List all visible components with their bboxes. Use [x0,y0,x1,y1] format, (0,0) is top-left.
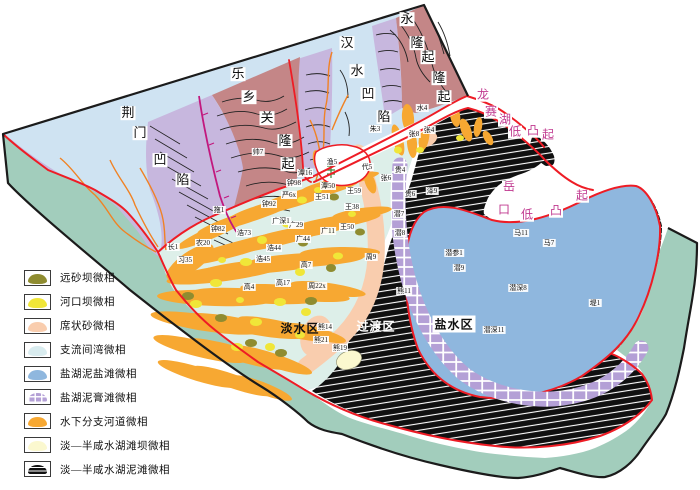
structure-label-lexiangguan-uplift: 关 [259,111,274,125]
legend-swatch-blob [28,346,47,356]
well-label: 潭16 [297,169,313,177]
legend-item-fresh-brackish-beach-bar: 淡—半咸水湖滩坝微相 [24,433,170,457]
legend-swatch-blob [28,370,47,380]
structure-label-lexiangguan-uplift: 乐 [230,67,245,81]
well-label: 高7 [300,261,313,269]
well-label: 堤1 [589,299,602,307]
structure-label-yonglong-uplift: 起 [436,90,451,104]
legend-label: 支流间湾微相 [60,342,126,357]
structure-label-jingmen-depression: 门 [132,126,147,140]
mouth-bar [190,300,202,308]
legend-item-distal-bar: 远砂坝微相 [24,266,170,290]
structure-label-hanshui-depression: 汉 [339,36,354,50]
legend-swatch-fresh-brackish-mud-flat [24,461,51,477]
well-label: 钟82 [210,225,226,233]
structure-label-yonglong-uplift: 永 [399,12,414,26]
legend-swatch-blob [28,274,47,284]
distal-bar [215,314,227,322]
legend-swatch-blob [28,322,47,332]
structure-label-hanshui-depression: 凹 [360,87,375,101]
mouth-bar [240,258,252,266]
legend-item-salt-lake-mud-gypsum-flat: 盐湖泥膏滩微相 [24,385,170,409]
well-label: 潜深8 [508,284,528,292]
mouth-bar [333,253,343,260]
distal-bar [245,339,257,347]
zone-label-fresh-water-zone: 淡水区 [280,320,319,337]
mouth-bar [250,318,262,326]
well-label: 潭50 [320,182,336,190]
legend-label: 席状砂微相 [60,318,115,333]
legend-label: 河口坝微相 [60,294,115,309]
well-label: 王50 [339,223,355,231]
structure-label-longsaihu-low-uplift: 龙 [476,89,490,102]
mouth-bar [236,297,244,303]
mouth-bar [301,308,311,316]
well-label: 周9 [365,253,378,261]
well-label: 张6 [380,174,393,182]
structure-label-longsaihu-low-uplift: 低 [508,126,522,139]
legend-item-interdistributary-bay: 支流间湾微相 [24,338,170,362]
mouth-bar [257,236,267,244]
structure-label-hanshui-depression: 陷 [376,110,391,124]
well-label: 泽9 [426,187,439,195]
well-label: 广11 [320,227,336,235]
well-label: 熊11 [396,287,412,295]
well-label: 马7 [543,239,556,247]
well-label: 代5 [361,163,374,171]
well-label: 马11 [513,229,529,237]
legend-label: 淡—半咸水湖泥滩微相 [60,462,170,477]
legend-item-mouth-bar: 河口坝微相 [24,290,170,314]
well-label: 习35 [177,256,193,264]
structure-label-lexiangguan-uplift: 隆 [277,134,292,148]
legend-swatch-salt-lake-mud-salt-flat [24,366,51,382]
well-label: 贵4 [394,166,407,174]
distal-bar [329,194,339,201]
legend-swatch-salt-lake-mud-gypsum-flat [24,389,51,405]
well-label: 高17 [275,279,291,287]
well-label: 钟92 [261,200,277,208]
well-label: 帅7 [252,148,265,156]
legend-swatch-sheet-sand [24,318,51,334]
structure-label-yuekou-low-uplift: 口 [497,204,511,217]
zone-label-transition-zone: 过渡区 [356,318,395,335]
well-label: 广深1 [271,217,291,225]
legend-swatch-mouth-bar [24,294,51,310]
mouth-bar [265,343,275,351]
legend-swatch-interdistributary-bay [24,342,51,358]
facies-map-figure: 荆门凹陷乐乡关隆起汉水凹陷永隆起隆起龙赛湖低凸起岳口低凸起淡水区过渡区盐水区拖1… [0,0,700,490]
well-label: 高4 [243,283,256,291]
legend-item-subaqueous-distributary-channel: 水下分支河道微相 [24,409,170,433]
well-label: 浩45 [255,255,271,263]
structure-label-jingmen-depression: 陷 [175,173,190,187]
legend-swatch-distal-bar [24,270,51,286]
well-label: 潜深11 [483,326,506,334]
well-label: 朱3 [369,125,382,133]
mouth-bar [297,197,307,204]
mouth-bar [394,147,402,154]
well-label: 长1 [167,243,180,251]
structure-label-jingmen-depression: 凹 [152,153,167,167]
legend-swatch-blob [28,393,47,403]
structure-label-yonglong-uplift: 起 [420,50,435,64]
structure-label-hanshui-depression: 水 [349,64,364,78]
structure-label-yuekou-low-uplift: 岳 [502,181,516,194]
structure-label-yuekou-low-uplift: 凸 [549,205,563,218]
well-label: 熊21 [313,336,329,344]
legend-swatch-blob [28,441,47,451]
distal-bar [305,297,317,305]
well-label: 广44 [295,235,311,243]
mouth-bar [210,279,222,287]
well-label: 农20 [195,239,211,247]
well-label: 严6x [281,191,297,199]
well-label: 浩73 [236,229,252,237]
distal-bar [275,349,287,357]
legend-label: 远砂坝微相 [60,270,115,285]
well-label: 浩44 [266,244,282,252]
well-label: 贵6 [404,190,417,198]
well-label: 张4 [423,126,436,134]
mouth-bar [274,298,286,306]
mouth-bar [348,211,356,217]
structure-label-yuekou-low-uplift: 低 [520,209,534,222]
distal-bar [326,264,336,272]
well-label: 潜参1 [444,249,464,257]
well-label: 渔5 [326,158,339,166]
zone-label-salt-water-zone: 盐水区 [432,316,475,333]
legend-label: 盐湖泥盐滩微相 [60,366,137,381]
well-label: 王38 [344,203,360,211]
legend-label: 淡—半咸水湖滩坝微相 [60,438,170,453]
distal-bar [355,229,365,236]
well-label: 周22x [307,282,327,290]
legend-swatch-blob [28,465,47,475]
legend-swatch-fresh-brackish-beach-bar [24,437,51,453]
legend-swatch-subaqueous-distributary-channel [24,413,51,429]
well-label: 张8 [408,130,421,138]
mouth-bar [218,257,226,263]
structure-label-yuekou-low-uplift: 起 [575,190,589,203]
legend: 远砂坝微相河口坝微相席状砂微相支流间湾微相盐湖泥盐滩微相盐湖泥膏滩微相水下分支河… [24,266,170,481]
well-label: 潜7 [393,210,406,218]
structure-label-yonglong-uplift: 隆 [431,71,446,85]
well-label: 熊14 [317,323,333,331]
well-label: 水4 [416,104,429,112]
mouth-bar [416,147,424,153]
structure-label-lexiangguan-uplift: 起 [280,157,295,171]
legend-item-sheet-sand: 席状砂微相 [24,314,170,338]
mouth-bar [456,135,464,141]
well-label: 钟98 [286,179,302,187]
structure-label-yonglong-uplift: 隆 [409,36,424,50]
structure-label-jingmen-depression: 荆 [120,106,135,120]
structure-label-longsaihu-low-uplift: 凸 [526,125,540,138]
well-label: 潜9 [453,264,466,272]
well-label: 王51 [314,193,330,201]
well-label: 拖1 [213,206,226,214]
legend-label: 盐湖泥膏滩微相 [60,390,137,405]
well-label: 潜8 [394,229,407,237]
legend-item-fresh-brackish-mud-flat: 淡—半咸水湖泥滩微相 [24,457,170,481]
structure-label-longsaihu-low-uplift: 赛 [484,106,498,119]
legend-swatch-blob [28,298,47,308]
legend-label: 水下分支河道微相 [60,414,148,429]
mouth-bar [295,268,305,276]
well-label: 王59 [346,187,362,195]
structure-label-lexiangguan-uplift: 乡 [241,90,256,104]
legend-item-salt-lake-mud-salt-flat: 盐湖泥盐滩微相 [24,362,170,386]
structure-label-longsaihu-low-uplift: 起 [541,129,555,142]
legend-swatch-blob [28,417,47,427]
well-label: 熊19 [332,344,348,352]
